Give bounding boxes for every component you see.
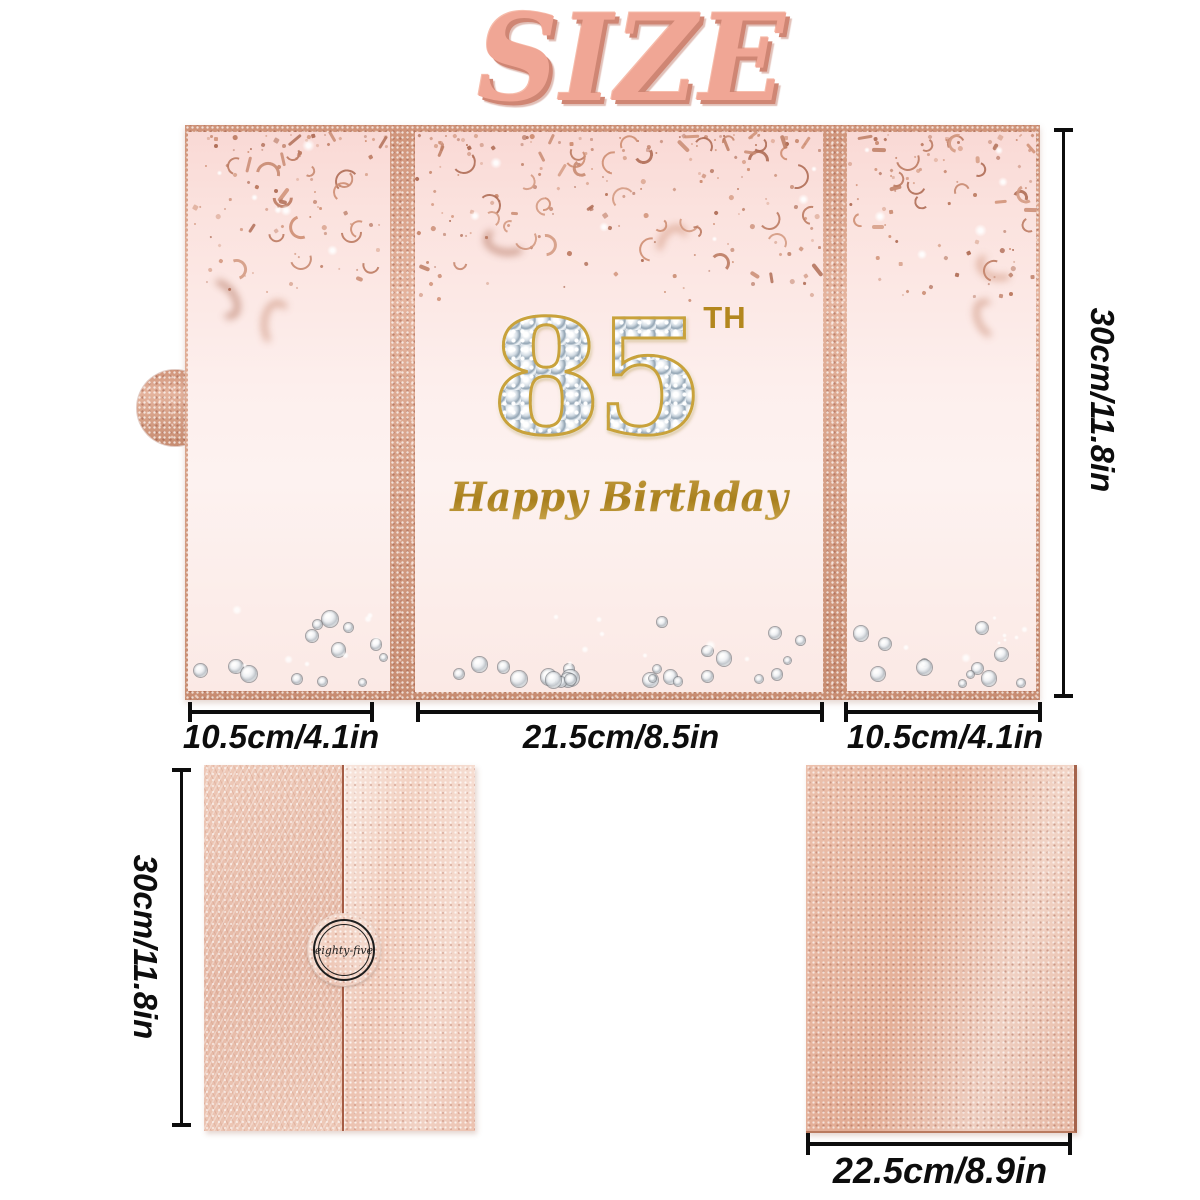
dimension-line-center-panel [418, 710, 822, 714]
dimension-tick [1054, 128, 1073, 132]
dimension-line-right-flap [846, 710, 1040, 714]
birthday-suffix: TH [703, 302, 746, 333]
dimension-label-closed-width: 22.5cm/8.9in [833, 1150, 1047, 1192]
dimension-line-open-height [1062, 128, 1065, 698]
dimension-tick [1068, 1133, 1072, 1155]
dimension-label-right-flap: 10.5cm/4.1in [847, 718, 1043, 756]
dimension-tick [1054, 694, 1073, 698]
card-panel-center: 85TH Happy Birthday [415, 132, 823, 692]
birthday-number: 85 [491, 300, 699, 458]
card-artwork: 85TH Happy Birthday [415, 300, 823, 521]
dimension-tick [806, 1133, 810, 1155]
wax-seal-icon: eighty-five [308, 914, 380, 986]
dimension-tick [172, 768, 191, 772]
closed-card-front: eighty-five [204, 765, 475, 1131]
card-panel-right [847, 132, 1036, 691]
birthday-greeting: Happy Birthday [423, 474, 815, 521]
dimension-tick [820, 702, 824, 722]
dimension-line-closed-height [180, 768, 183, 1127]
seal-label: eighty-five [310, 914, 378, 986]
open-card: 85TH Happy Birthday [185, 125, 1040, 700]
closed-card-back [806, 765, 1077, 1133]
dimension-line-closed-width [808, 1142, 1072, 1146]
dimension-tick [172, 1123, 191, 1127]
card-panel-left [188, 132, 390, 691]
size-title: SIZE [477, 0, 787, 129]
dimension-label-left-flap: 10.5cm/4.1in [183, 718, 379, 756]
dimension-tick [416, 702, 420, 722]
dimension-label-center-panel: 21.5cm/8.5in [523, 718, 719, 756]
dimension-line-left-flap [190, 710, 372, 714]
size-chart: SIZE 85TH Happy Birthday 30cm/11.8in 10.… [0, 0, 1200, 1200]
